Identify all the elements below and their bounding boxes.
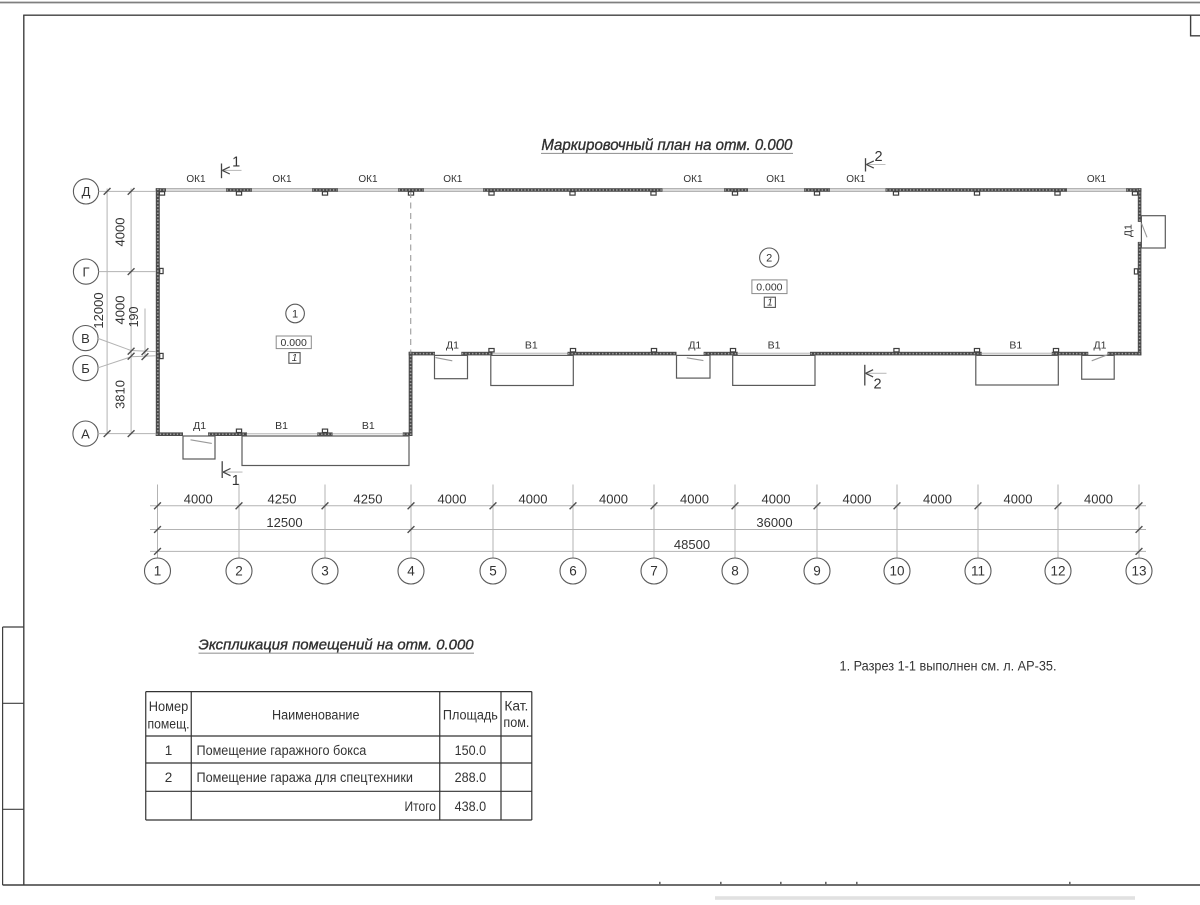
svg-text:Д1: Д1 — [688, 339, 701, 351]
svg-text:помещ.: помещ. — [148, 717, 190, 732]
svg-text:ОК1: ОК1 — [846, 174, 866, 185]
svg-text:1: 1 — [292, 353, 298, 364]
svg-text:Площадь: Площадь — [443, 708, 498, 723]
svg-text:ОК1: ОК1 — [766, 174, 786, 185]
svg-text:4000: 4000 — [184, 491, 213, 506]
svg-text:4250: 4250 — [354, 491, 383, 506]
svg-text:4000: 4000 — [519, 491, 548, 506]
svg-text:7: 7 — [650, 564, 658, 579]
svg-text:4000: 4000 — [1004, 491, 1033, 506]
svg-text:1: 1 — [232, 155, 240, 171]
svg-text:В1: В1 — [768, 339, 781, 351]
svg-text:4000: 4000 — [113, 218, 128, 247]
svg-text:0.000: 0.000 — [756, 282, 782, 294]
svg-text:Д1: Д1 — [1094, 339, 1107, 351]
svg-text:Маркировочный план на отм. 0.0: Маркировочный план на отм. 0.000 — [541, 137, 792, 154]
svg-text:12500: 12500 — [266, 515, 302, 530]
svg-text:3810: 3810 — [113, 380, 128, 409]
svg-text:2: 2 — [235, 564, 243, 579]
svg-text:Д1: Д1 — [1123, 224, 1135, 237]
svg-text:1: 1 — [165, 743, 173, 758]
svg-text:4000: 4000 — [1084, 491, 1113, 506]
svg-text:5: 5 — [489, 564, 497, 579]
svg-text:2: 2 — [874, 377, 882, 393]
svg-text:3: 3 — [321, 564, 329, 579]
svg-text:190: 190 — [127, 307, 141, 328]
svg-text:1: 1 — [292, 309, 298, 321]
svg-text:В1: В1 — [275, 420, 288, 432]
svg-text:48500: 48500 — [674, 537, 710, 552]
svg-text:4000: 4000 — [762, 491, 791, 506]
svg-text:ОК1: ОК1 — [683, 174, 703, 185]
svg-text:ОК1: ОК1 — [272, 174, 292, 185]
svg-text:11: 11 — [971, 564, 985, 579]
svg-text:2: 2 — [165, 770, 173, 785]
svg-text:Помещение гаража для спецтехни: Помещение гаража для спецтехники — [197, 770, 414, 785]
svg-text:А: А — [81, 426, 90, 441]
svg-text:12000: 12000 — [91, 292, 106, 328]
svg-text:Д1: Д1 — [193, 420, 206, 432]
svg-text:ОК1: ОК1 — [1087, 174, 1107, 185]
svg-text:2: 2 — [766, 253, 772, 265]
svg-text:Б: Б — [81, 361, 90, 376]
svg-text:10: 10 — [889, 564, 904, 579]
svg-text:4000: 4000 — [680, 491, 709, 506]
svg-text:4000: 4000 — [113, 296, 128, 325]
svg-text:4000: 4000 — [438, 491, 467, 506]
svg-text:Экспликация помещений на отм.: Экспликация помещений на отм. 0.000 — [199, 637, 475, 654]
svg-text:Итого: Итого — [405, 799, 437, 814]
svg-text:4000: 4000 — [599, 491, 628, 506]
svg-text:В1: В1 — [525, 339, 538, 351]
svg-text:Кат.: Кат. — [504, 699, 528, 714]
svg-text:Наименование: Наименование — [272, 708, 360, 723]
svg-text:В1: В1 — [362, 420, 375, 432]
svg-text:4250: 4250 — [268, 491, 297, 506]
svg-text:0.000: 0.000 — [281, 337, 307, 349]
svg-text:Г: Г — [82, 264, 89, 279]
svg-text:пом.: пом. — [503, 715, 529, 730]
svg-text:6: 6 — [569, 564, 577, 579]
svg-text:Д1: Д1 — [446, 339, 459, 351]
svg-text:4000: 4000 — [923, 491, 952, 506]
svg-text:36000: 36000 — [756, 515, 792, 530]
svg-text:288.0: 288.0 — [455, 770, 487, 785]
svg-text:1: 1 — [154, 564, 162, 579]
svg-text:150.0: 150.0 — [455, 743, 487, 758]
svg-text:12: 12 — [1050, 564, 1065, 579]
svg-text:438.0: 438.0 — [455, 799, 487, 814]
svg-text:8: 8 — [731, 564, 739, 579]
svg-text:ОК1: ОК1 — [186, 174, 206, 185]
svg-text:4000: 4000 — [843, 491, 872, 506]
svg-text:13: 13 — [1131, 564, 1146, 579]
svg-text:1. Разрез 1-1 выполнен см. л.: 1. Разрез 1-1 выполнен см. л. АР-35. — [840, 658, 1057, 673]
svg-text:Номер: Номер — [149, 699, 189, 714]
svg-text:Помещение гаражного бокса: Помещение гаражного бокса — [197, 743, 367, 758]
svg-text:В: В — [81, 331, 90, 346]
svg-text:9: 9 — [813, 564, 821, 579]
svg-text:2: 2 — [874, 149, 882, 165]
svg-text:Д: Д — [82, 184, 91, 199]
svg-text:В1: В1 — [1009, 339, 1022, 351]
svg-text:4: 4 — [407, 564, 415, 579]
svg-text:ОК1: ОК1 — [358, 174, 378, 185]
svg-text:ОК1: ОК1 — [443, 174, 463, 185]
svg-text:1: 1 — [767, 298, 773, 309]
